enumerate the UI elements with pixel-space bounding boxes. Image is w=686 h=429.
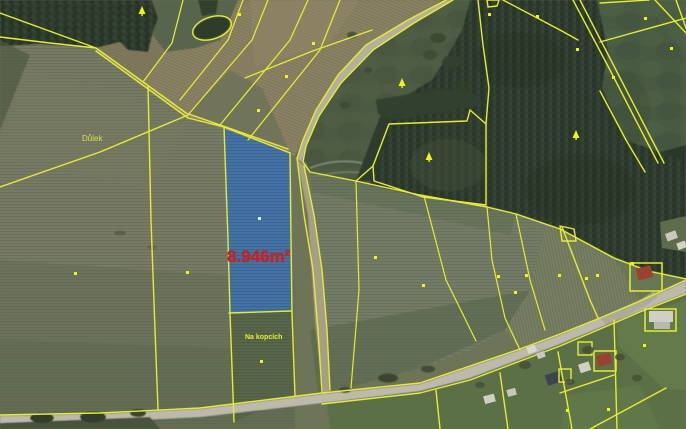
svg-text:Důlek: Důlek bbox=[82, 134, 103, 143]
svg-text:8.946m²: 8.946m² bbox=[227, 247, 291, 266]
svg-text:Na kopcích: Na kopcích bbox=[245, 334, 282, 341]
